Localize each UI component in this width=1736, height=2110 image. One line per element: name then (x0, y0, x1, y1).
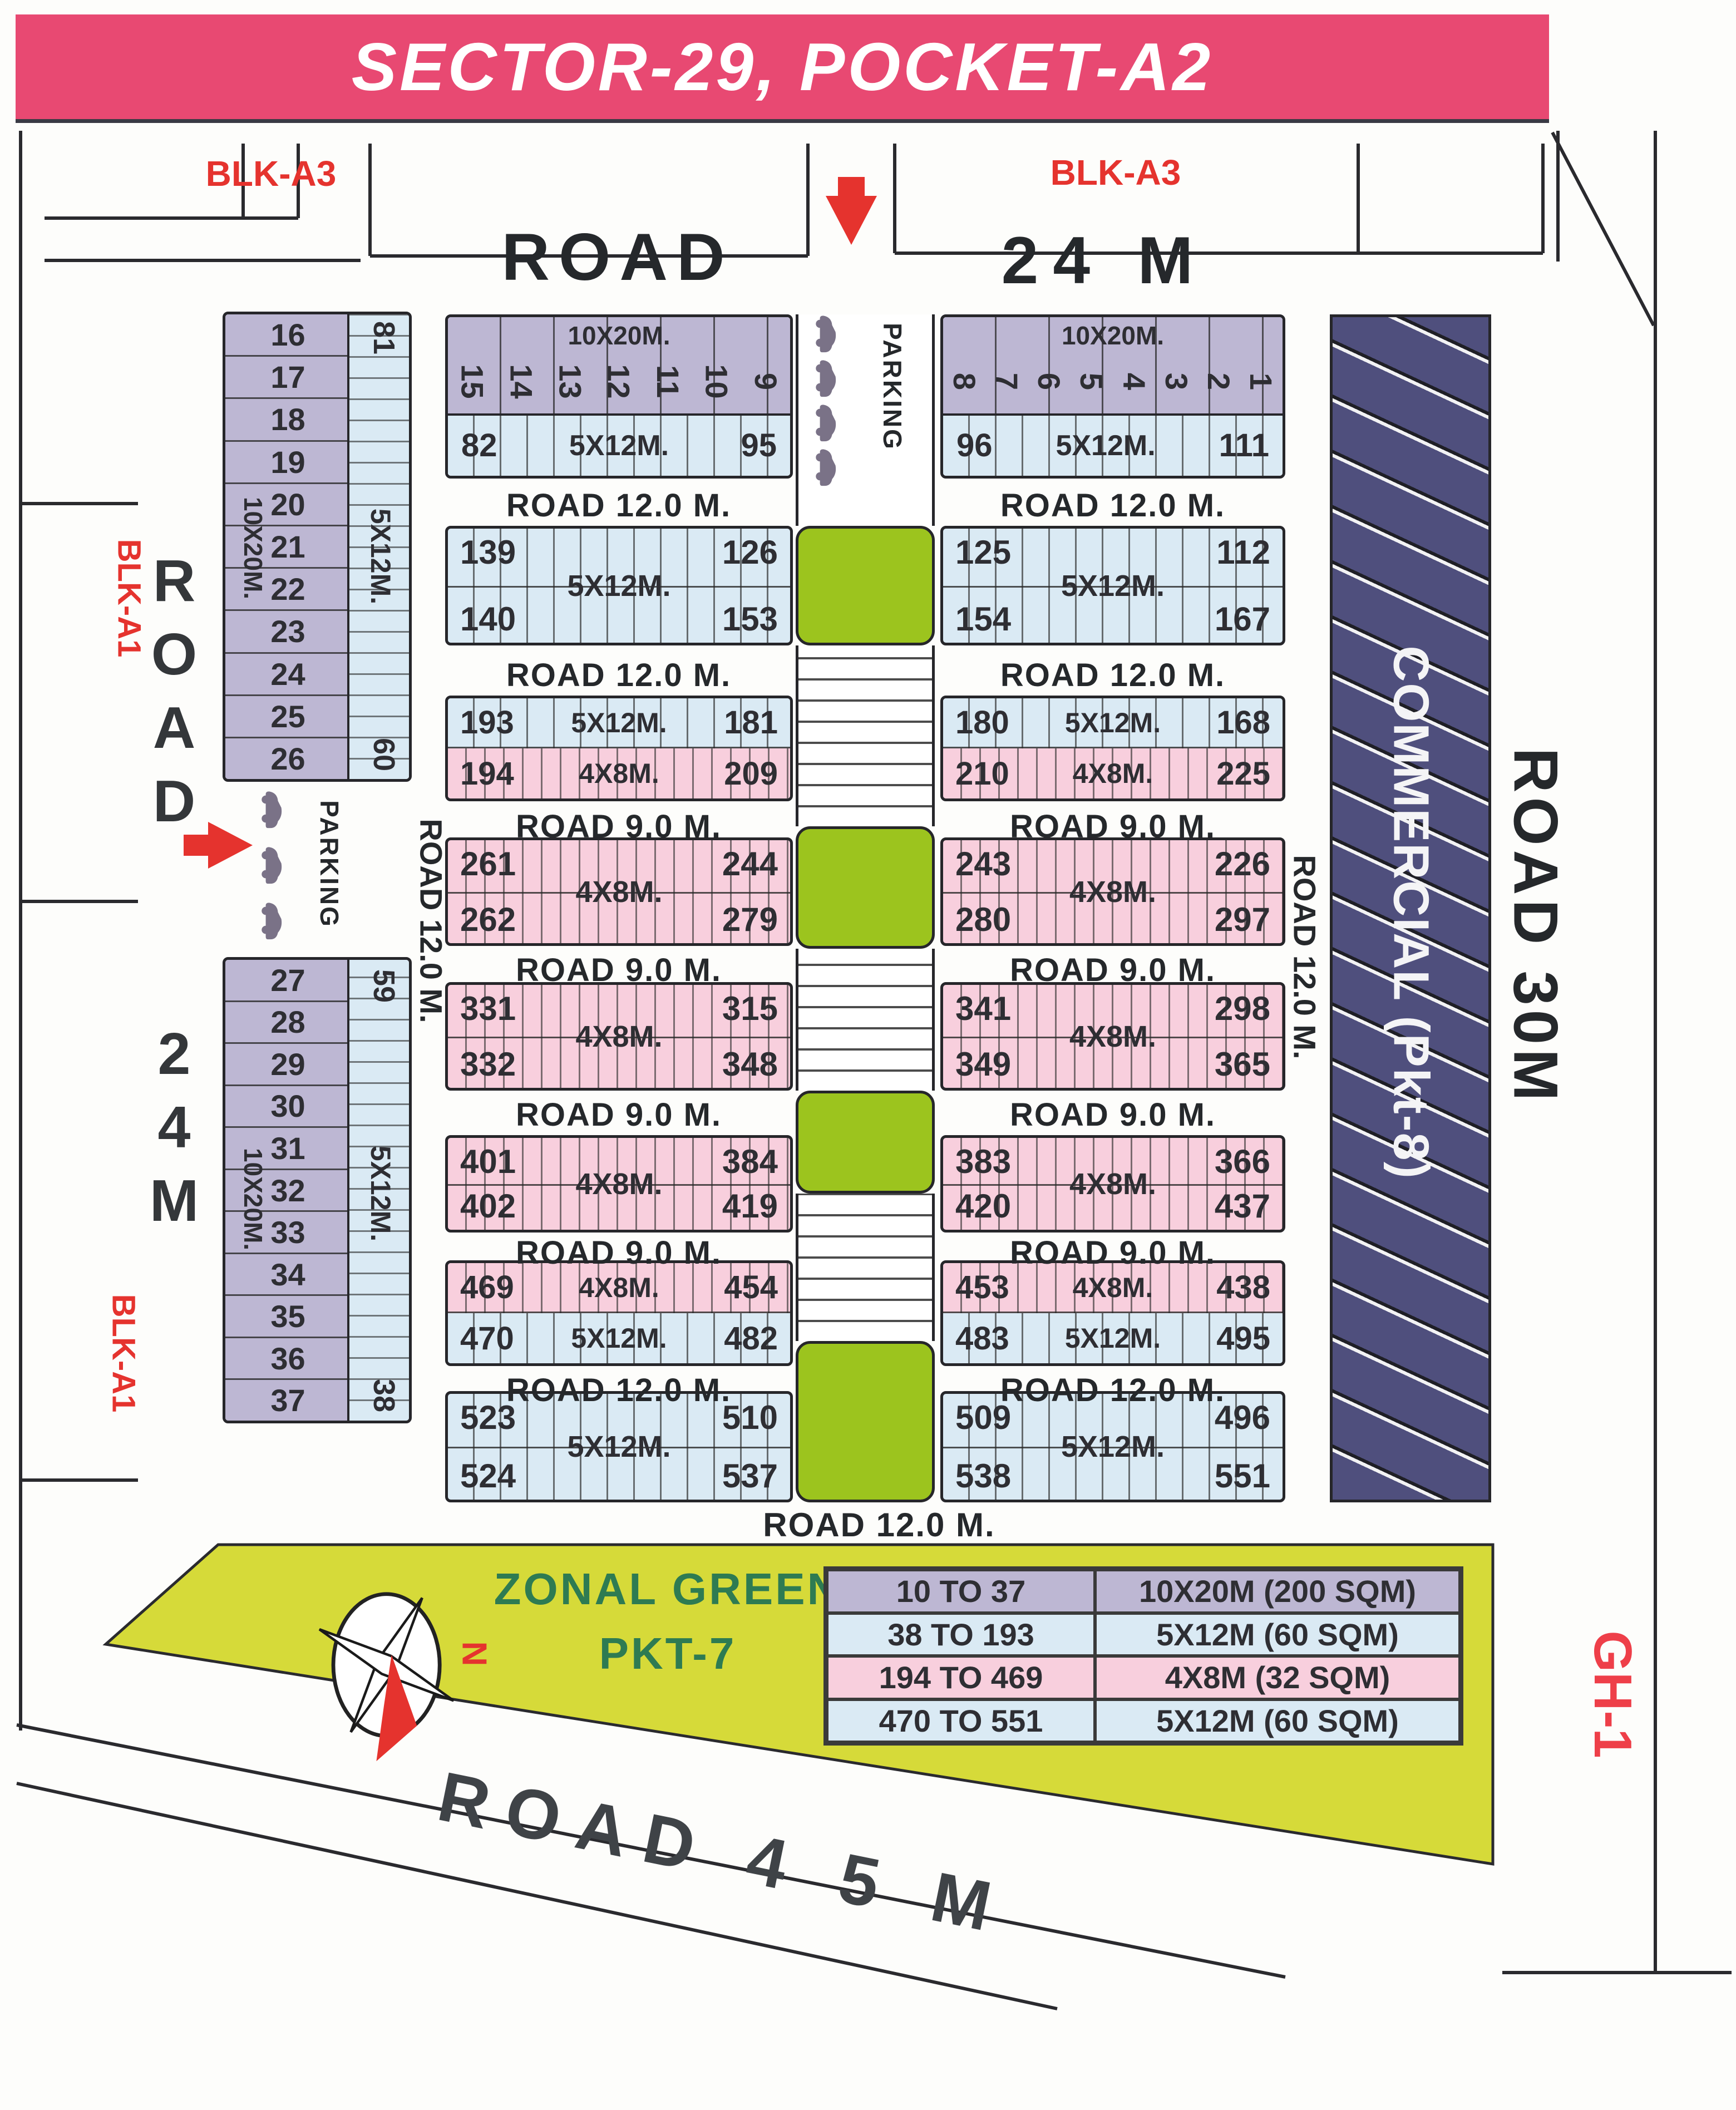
plot-number: 140 (460, 600, 516, 638)
plot-number: 438 (1216, 1269, 1270, 1306)
plot-row: 27 (225, 960, 351, 1002)
block-row5-left: 331 315 332 348 4X8M. (445, 982, 793, 1091)
block-row3-left: 193 5X12M. 181 194 4X8M. 209 (445, 696, 793, 801)
band-dim-label: 4X8M. (579, 757, 659, 790)
band-dim-label: 5X12M. (1065, 707, 1161, 739)
road-label: ROAD 9.0 M. (516, 1234, 722, 1271)
rotated-plot-numbers: 1514131211109 (448, 351, 790, 412)
zonal-green-title: ZONAL GREEN (494, 1564, 842, 1615)
commercial-label: COMMERCIAL (Pkt-8) (1382, 645, 1439, 1179)
col-a-corner-bottom: 60 (367, 738, 401, 771)
plot-number-cell: 3 (1155, 351, 1197, 412)
plot-number: 279 (722, 900, 778, 939)
band-10x20: 10X20M. 87654321 (943, 317, 1283, 416)
car-icon (806, 320, 849, 347)
plot-number: 402 (460, 1187, 516, 1225)
plot-number: 483 (955, 1320, 1009, 1357)
road-label: ROAD 9.0 M. (1010, 952, 1216, 989)
band-4x8: 210 4X8M. 225 (943, 748, 1283, 798)
plot-number: 298 (1215, 989, 1270, 1028)
col-b-corner-bottom: 38 (367, 1379, 401, 1412)
plot-number: 419 (722, 1187, 778, 1225)
parking-arrow-right-icon (208, 822, 253, 869)
band-4x8: 194 4X8M. 209 (448, 748, 790, 798)
plot-row: 25 (225, 696, 351, 738)
band-dim-label: 4X8M. (575, 1167, 662, 1201)
compass-north-label: N (455, 1641, 494, 1667)
plot-row: 34 (225, 1254, 351, 1296)
legend-size: 10X20M (200 SQM) (1095, 1570, 1460, 1613)
plot-number: 383 (955, 1142, 1011, 1181)
plot-number: 226 (1215, 845, 1270, 883)
band-dim-label: 4X8M. (1069, 1167, 1156, 1201)
plot-number: 551 (1215, 1457, 1270, 1495)
road-label: ROAD 12.0 M. (763, 1506, 995, 1544)
rotated-plot-numbers: 87654321 (943, 351, 1283, 412)
plot-number: 348 (722, 1045, 778, 1083)
plot-number: 341 (955, 989, 1011, 1028)
plot-row: 26 (225, 738, 351, 779)
band-5x12: 193 5X12M. 181 (448, 698, 790, 748)
plot-size-legend: 10 TO 37 10X20M (200 SQM) 38 TO 193 5X12… (823, 1566, 1463, 1746)
plot-number: 420 (955, 1187, 1011, 1225)
band-5x12: 470 5X12M. 482 (448, 1313, 790, 1363)
sector-plan-map: SECTOR-29, POCKET-A2 BLK-A3 BLK-A3 ROAD … (0, 0, 1736, 2110)
band-dim-label: 4X8M. (1069, 1019, 1156, 1054)
col-a-dim-label: 10X20M. (238, 497, 268, 599)
plot-number: 437 (1215, 1187, 1270, 1225)
road-label: ROAD 9.0 M. (516, 1096, 722, 1133)
col-b-strip-dim-label: 5X12M. (364, 1146, 397, 1241)
plot-number: 181 (724, 704, 778, 741)
plot-number: 82 (461, 427, 497, 464)
band-dim-label: 10X20M. (943, 317, 1283, 351)
plot-number: 209 (724, 755, 778, 792)
page-title: SECTOR-29, POCKET-A2 (352, 28, 1214, 106)
plot-row: 23 (225, 611, 351, 653)
col-a-strip-dim-label: 5X12M. (364, 509, 397, 604)
road-label: ROAD 9.0 M. (1010, 808, 1216, 845)
plot-row: 28 (225, 1002, 351, 1044)
plot-number: 210 (955, 755, 1009, 792)
legend-size: 5X12M (60 SQM) (1095, 1613, 1460, 1657)
plot-number: 139 (460, 533, 516, 571)
plot-number: 349 (955, 1045, 1011, 1083)
block-row7-left: 469 4X8M. 454 470 5X12M. 482 (445, 1260, 793, 1366)
car-icon (806, 409, 849, 436)
plot-number: 280 (955, 900, 1011, 939)
plot-number-cell: 4 (1113, 351, 1155, 412)
band-dim-label: 4X8M. (575, 875, 662, 909)
band-dim-label: 5X12M. (1065, 1322, 1161, 1354)
plot-number: 469 (460, 1269, 514, 1306)
car-icon (251, 796, 295, 822)
plot-number: 126 (722, 533, 778, 571)
green-median-square (796, 1091, 935, 1194)
median-road-segment (796, 1194, 935, 1341)
plot-number: 537 (722, 1457, 778, 1495)
plot-number: 454 (724, 1269, 778, 1306)
plot-row: 35 (225, 1296, 351, 1338)
band-dim-label: 5X12M. (567, 569, 670, 603)
band-10x20: 10X20M. 1514131211109 (448, 317, 790, 416)
plot-number: 453 (955, 1269, 1009, 1306)
plot-number: 331 (460, 989, 516, 1028)
plot-number: 524 (460, 1457, 516, 1495)
legend-size: 5X12M (60 SQM) (1095, 1699, 1460, 1743)
plot-number: 167 (1215, 600, 1270, 638)
plot-number: 495 (1216, 1320, 1270, 1357)
band-dim-label: 5X12M. (569, 429, 669, 462)
zonal-green-subtitle: PKT-7 (599, 1628, 737, 1679)
green-median-strip (796, 1341, 935, 1502)
car-icon (251, 907, 295, 934)
band-dim-label: 5X12M. (1061, 569, 1165, 603)
band-5x12: 96 5X12M. 111 (943, 416, 1283, 476)
plot-number-cell: 14 (497, 351, 546, 412)
block-row6-right: 383 366 420 437 4X8M. (940, 1135, 1285, 1233)
plot-row: 36 (225, 1338, 351, 1381)
band-dim-label: 5X12M. (1056, 429, 1155, 462)
road-label: ROAD 9.0 M. (1010, 1096, 1216, 1133)
left-parking-label: PARKING (314, 800, 344, 928)
legend-range: 194 TO 469 (827, 1656, 1095, 1699)
block-row5-right: 341 298 349 365 4X8M. (940, 982, 1285, 1091)
band-5x12: 483 5X12M. 495 (943, 1313, 1283, 1363)
band-5x12: 180 5X12M. 168 (943, 698, 1283, 748)
plot-number: 125 (955, 533, 1011, 571)
blk-a1-lower-label: BLK-A1 (105, 1294, 142, 1413)
blk-a1-upper-label: BLK-A1 (111, 539, 148, 658)
plot-number-cell: 11 (643, 351, 692, 412)
col-a-corner-top: 81 (367, 321, 401, 354)
road-30m-label: ROAD 30M (1500, 748, 1572, 1106)
median-parking-label: PARKING (877, 323, 908, 451)
plot-number-cell: 7 (985, 351, 1028, 412)
band-5x12: 82 5X12M. 95 (448, 416, 790, 476)
parking-arrow-stem (184, 835, 208, 856)
left-road-width-label: 24M (140, 1021, 208, 1241)
inner-road-left-label: ROAD 12.0 M. (413, 819, 450, 1023)
plot-number-cell: 13 (546, 351, 595, 412)
block-row2-left: 139 126 140 153 5X12M. (445, 526, 793, 645)
band-dim-label: 4X8M. (1073, 757, 1153, 790)
road-label: ROAD 12.0 M. (1000, 487, 1225, 524)
plot-number: 95 (741, 427, 777, 464)
plot-row: 30 (225, 1086, 351, 1128)
plot-number: 180 (955, 704, 1009, 741)
plot-number: 168 (1216, 704, 1270, 741)
block-row6-left: 401 384 402 419 4X8M. (445, 1135, 793, 1233)
plot-number: 482 (724, 1320, 778, 1357)
road-label: ROAD 12.0 M. (506, 487, 731, 524)
legend-range: 10 TO 37 (827, 1570, 1095, 1613)
plot-number-cell: 2 (1198, 351, 1240, 412)
top-road-width-label: 24 M (1002, 222, 1208, 299)
plot-number-cell: 15 (448, 351, 497, 412)
band-dim-label: 4X8M. (579, 1271, 659, 1304)
plot-number: 154 (955, 600, 1011, 638)
plot-number: 470 (460, 1320, 514, 1357)
plot-number: 194 (460, 755, 514, 792)
plot-number: 96 (956, 427, 993, 464)
block-row1-left: 10X20M. 1514131211109 82 5X12M. 95 (445, 314, 793, 479)
band-dim-label: 5X12M. (567, 1429, 670, 1464)
entry-arrow-down-icon (826, 196, 877, 245)
band-dim-label: 5X12M. (1061, 1429, 1165, 1464)
title-banner: SECTOR-29, POCKET-A2 (16, 14, 1549, 123)
block-row4-left: 261 244 262 279 4X8M. (445, 837, 793, 946)
inner-road-right-label: ROAD 12.0 M. (1287, 855, 1323, 1059)
legend-size: 4X8M (32 SQM) (1095, 1656, 1460, 1699)
green-median-square (796, 826, 935, 949)
plot-number: 262 (460, 900, 516, 939)
band-dim-label: 5X12M. (571, 1322, 667, 1354)
blk-a3-left-label: BLK-A3 (206, 153, 337, 194)
blk-a3-right-label: BLK-A3 (1051, 152, 1181, 193)
block-row4-right: 243 226 280 297 4X8M. (940, 837, 1285, 946)
block-row3-right: 180 5X12M. 168 210 4X8M. 225 (940, 696, 1285, 801)
plot-row: 17 (225, 357, 351, 399)
plot-row: 29 (225, 1044, 351, 1086)
band-dim-label: 5X12M. (571, 707, 667, 739)
car-icon (806, 453, 849, 480)
plot-number: 193 (460, 704, 514, 741)
band-dim-label: 4X8M. (1069, 875, 1156, 909)
gh-1-label: GH-1 (1582, 1630, 1643, 1758)
plot-number: 297 (1215, 900, 1270, 939)
plot-number: 153 (722, 600, 778, 638)
road-label: ROAD 12.0 M. (1000, 657, 1225, 694)
plot-number: 315 (722, 989, 778, 1028)
plot-row: 24 (225, 654, 351, 696)
road-label: ROAD 12.0 M. (506, 657, 731, 694)
plot-row: 19 (225, 442, 351, 484)
compass-rose-icon (309, 1581, 476, 1765)
plot-row: 37 (225, 1380, 351, 1421)
car-icon (806, 364, 849, 391)
plot-row: 16 (225, 314, 351, 357)
green-median-square (796, 526, 935, 645)
block-row2-right: 125 112 154 167 5X12M. (940, 526, 1285, 645)
road-label: ROAD 12.0 M. (506, 1372, 731, 1409)
band-dim-label: 4X8M. (575, 1019, 662, 1054)
block-row7-right: 453 4X8M. 438 483 5X12M. 495 (940, 1260, 1285, 1366)
plot-number: 111 (1219, 427, 1269, 464)
plot-number-cell: 10 (692, 351, 741, 412)
plot-number: 332 (460, 1045, 516, 1083)
plot-number-cell: 9 (741, 351, 790, 412)
road-label: ROAD 9.0 M. (516, 808, 722, 845)
plot-number-cell: 12 (595, 351, 644, 412)
plot-number: 538 (955, 1457, 1011, 1495)
plot-number: 401 (460, 1142, 516, 1181)
road-label: ROAD 12.0 M. (1000, 1372, 1225, 1409)
plot-number-cell: 5 (1071, 351, 1113, 412)
plot-number: 112 (1216, 533, 1270, 571)
plot-number: 366 (1215, 1142, 1270, 1181)
plot-number-cell: 1 (1240, 351, 1283, 412)
band-dim-label: 10X20M. (448, 317, 790, 351)
plot-number-cell: 8 (943, 351, 985, 412)
block-row1-right: 10X20M. 87654321 96 5X12M. 111 (940, 314, 1285, 479)
plot-number: 243 (955, 845, 1011, 883)
plot-row: 18 (225, 399, 351, 441)
plot-number: 365 (1215, 1045, 1270, 1083)
median-road-segment (796, 949, 935, 1091)
legend-range: 38 TO 193 (827, 1613, 1095, 1657)
car-icon (251, 851, 295, 878)
top-road-label: ROAD (501, 219, 733, 295)
plot-number: 261 (460, 845, 516, 883)
left-road-label: ROAD (140, 548, 208, 842)
plot-number: 225 (1216, 755, 1270, 792)
road-label: ROAD 9.0 M. (1010, 1234, 1216, 1271)
plot-number: 244 (722, 845, 778, 883)
band-dim-label: 4X8M. (1073, 1271, 1153, 1304)
col-b-dim-label: 10X20M. (238, 1148, 268, 1250)
plot-number: 384 (722, 1142, 778, 1181)
road-label: ROAD 9.0 M. (516, 952, 722, 989)
plot-number-cell: 6 (1028, 351, 1071, 412)
median-road-segment (796, 645, 935, 826)
legend-range: 470 TO 551 (827, 1699, 1095, 1743)
col-b-corner-top: 59 (367, 969, 401, 1003)
